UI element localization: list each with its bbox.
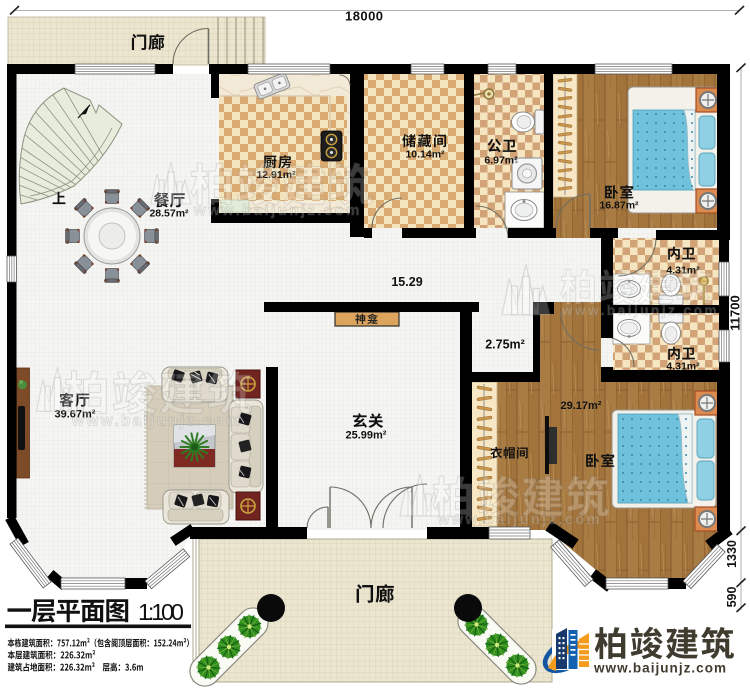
- svg-text:1:100: 1:100: [138, 599, 184, 625]
- svg-text:18000: 18000: [345, 9, 383, 24]
- svg-text:1330: 1330: [725, 540, 739, 568]
- svg-text:www.baijunjz.com: www.baijunjz.com: [561, 303, 719, 318]
- svg-text:2.75m²: 2.75m²: [485, 338, 525, 352]
- svg-text:www.baijunjz.com: www.baijunjz.com: [593, 661, 726, 676]
- svg-text:6.97m²: 6.97m²: [484, 155, 518, 167]
- svg-text:25.99m²: 25.99m²: [346, 430, 387, 442]
- svg-text:www.baijunjz.com: www.baijunjz.com: [437, 512, 602, 528]
- svg-text:www.baijunjz.com: www.baijunjz.com: [193, 202, 362, 219]
- svg-text:15.29: 15.29: [391, 275, 422, 289]
- svg-text:10.14m²: 10.14m²: [405, 149, 445, 161]
- svg-text:16.87m²: 16.87m²: [599, 200, 639, 212]
- svg-text:29.17m²: 29.17m²: [561, 400, 602, 412]
- svg-text:www.baijunjz.com: www.baijunjz.com: [71, 413, 242, 430]
- svg-text:590: 590: [725, 587, 739, 608]
- svg-text:28.57m²: 28.57m²: [149, 208, 189, 220]
